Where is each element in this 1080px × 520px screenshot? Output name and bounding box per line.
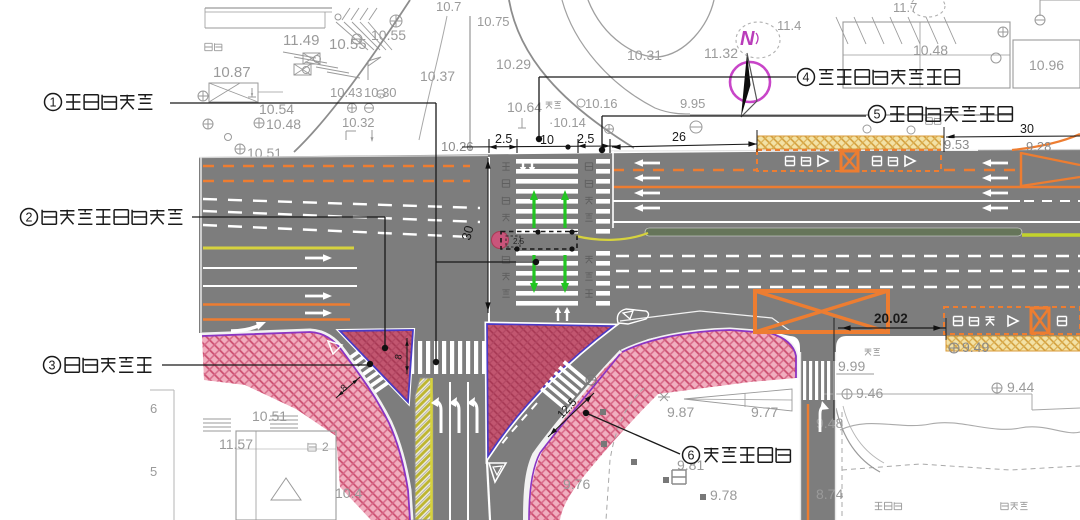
svg-text:10.51: 10.51 [252, 408, 287, 424]
svg-text:6: 6 [688, 449, 695, 463]
svg-text:9.78: 9.78 [710, 487, 737, 503]
svg-text:10.7: 10.7 [436, 0, 461, 14]
svg-text:N: N [740, 28, 755, 50]
svg-text:·10.14: ·10.14 [549, 115, 586, 130]
svg-text:9.28: 9.28 [1026, 139, 1051, 154]
svg-text:30: 30 [1020, 122, 1034, 136]
svg-text:11.49: 11.49 [283, 32, 319, 49]
svg-text:1: 1 [50, 96, 57, 110]
svg-text:9.87: 9.87 [667, 404, 694, 420]
svg-text:9.49: 9.49 [962, 339, 989, 355]
svg-text:10.55: 10.55 [371, 27, 406, 43]
svg-text:10.37: 10.37 [420, 68, 455, 84]
svg-text:10.75: 10.75 [477, 14, 510, 29]
svg-text:5: 5 [150, 464, 157, 479]
svg-text:10.48: 10.48 [913, 42, 948, 58]
svg-text:5: 5 [874, 108, 881, 122]
svg-text:10: 10 [540, 133, 554, 147]
svg-text:10.31: 10.31 [627, 47, 662, 63]
svg-text:9.99: 9.99 [838, 358, 865, 374]
svg-text:10.55: 10.55 [329, 36, 367, 53]
svg-text:11.57: 11.57 [219, 436, 253, 452]
svg-text:10.48: 10.48 [266, 116, 301, 132]
svg-text:10.32: 10.32 [342, 115, 375, 130]
svg-text:10.64: 10.64 [507, 99, 542, 115]
svg-text:2: 2 [26, 211, 33, 225]
svg-text:11.4: 11.4 [777, 18, 801, 33]
svg-text:9.46: 9.46 [856, 385, 883, 401]
svg-text:2.5: 2.5 [513, 237, 525, 246]
svg-text:2.5: 2.5 [495, 132, 512, 146]
svg-text:10.4: 10.4 [335, 485, 362, 501]
svg-text:10.16: 10.16 [585, 96, 618, 111]
svg-text:2: 2 [322, 440, 329, 454]
svg-text:9.44: 9.44 [1007, 379, 1034, 395]
svg-text:9.77: 9.77 [751, 404, 778, 420]
svg-text:10.29: 10.29 [496, 56, 531, 72]
svg-text:4: 4 [803, 71, 810, 85]
svg-text:9.95: 9.95 [680, 96, 705, 111]
svg-text:6: 6 [150, 401, 157, 416]
svg-text:2.5: 2.5 [577, 132, 594, 146]
svg-text:11.7: 11.7 [893, 0, 917, 15]
svg-text:10.96: 10.96 [1029, 57, 1064, 73]
svg-text:8.74: 8.74 [816, 486, 843, 502]
svg-text:20.02: 20.02 [874, 311, 908, 326]
svg-text:26: 26 [672, 130, 686, 144]
svg-text:3: 3 [49, 359, 56, 373]
svg-text:9.76: 9.76 [563, 476, 590, 492]
svg-text:10.87: 10.87 [213, 64, 251, 81]
svg-text:10.30: 10.30 [364, 85, 397, 100]
svg-text:11.32: 11.32 [704, 45, 738, 61]
svg-text:9.53: 9.53 [944, 137, 969, 152]
